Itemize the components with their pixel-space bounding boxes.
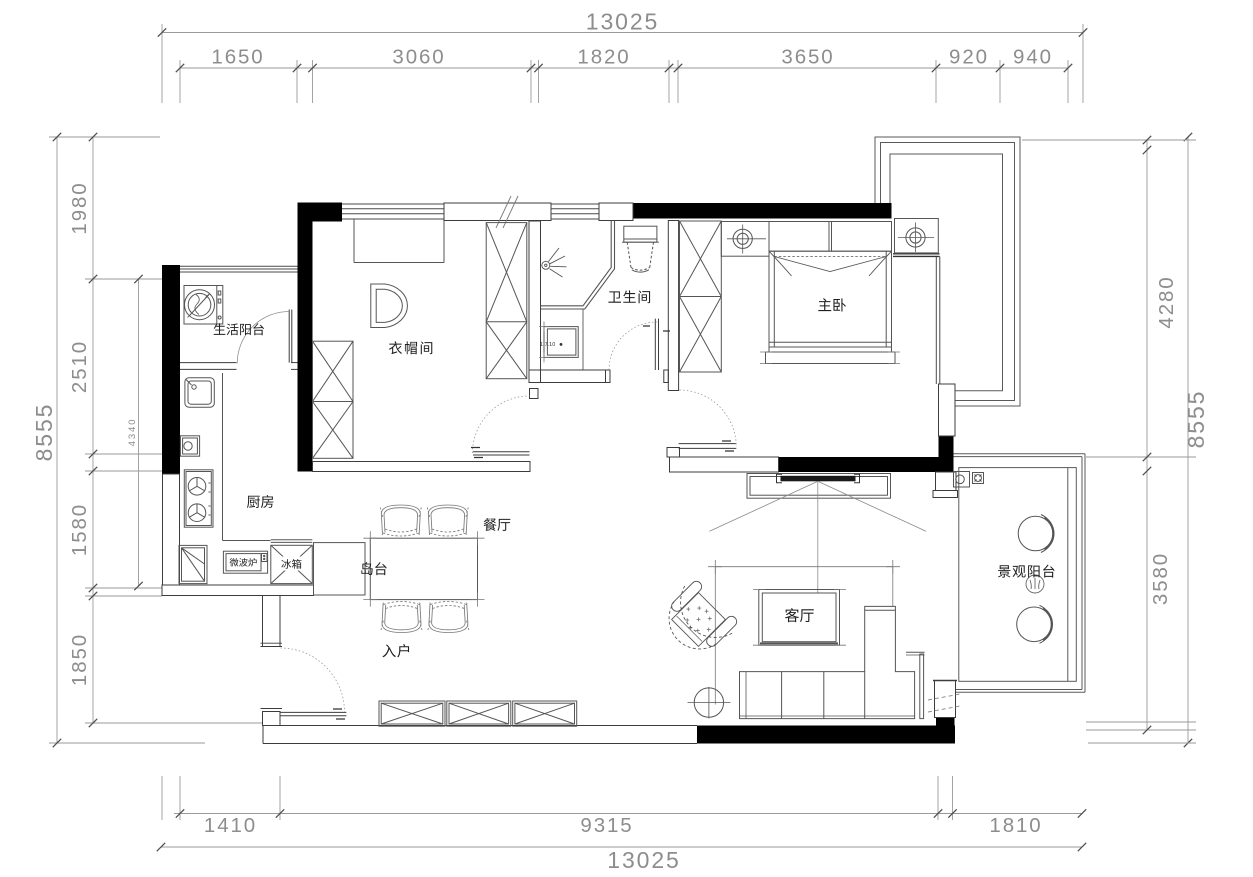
svg-text:9315: 9315 <box>580 814 633 837</box>
svg-text:1410: 1410 <box>204 814 257 837</box>
svg-text:4340: 4340 <box>127 418 138 447</box>
svg-text:3650: 3650 <box>781 46 834 69</box>
svg-text:1980: 1980 <box>68 181 91 234</box>
svg-text:8555: 8555 <box>1183 390 1209 449</box>
svg-text:13025: 13025 <box>586 9 659 35</box>
svg-text:1650: 1650 <box>211 46 264 69</box>
svg-text:3580: 3580 <box>1149 552 1172 605</box>
svg-text:1580: 1580 <box>68 503 91 556</box>
svg-text:920: 920 <box>949 46 989 69</box>
svg-text:8555: 8555 <box>31 403 57 462</box>
svg-text:1850: 1850 <box>68 633 91 686</box>
svg-text:3060: 3060 <box>392 46 445 69</box>
svg-text:13025: 13025 <box>607 847 680 873</box>
svg-text:2510: 2510 <box>68 340 91 393</box>
svg-text:940: 940 <box>1013 46 1053 69</box>
svg-text:1820: 1820 <box>577 46 630 69</box>
svg-text:1.7.10: 1.7.10 <box>540 342 555 348</box>
svg-text:4280: 4280 <box>1155 275 1178 328</box>
svg-text:1810: 1810 <box>989 814 1042 837</box>
